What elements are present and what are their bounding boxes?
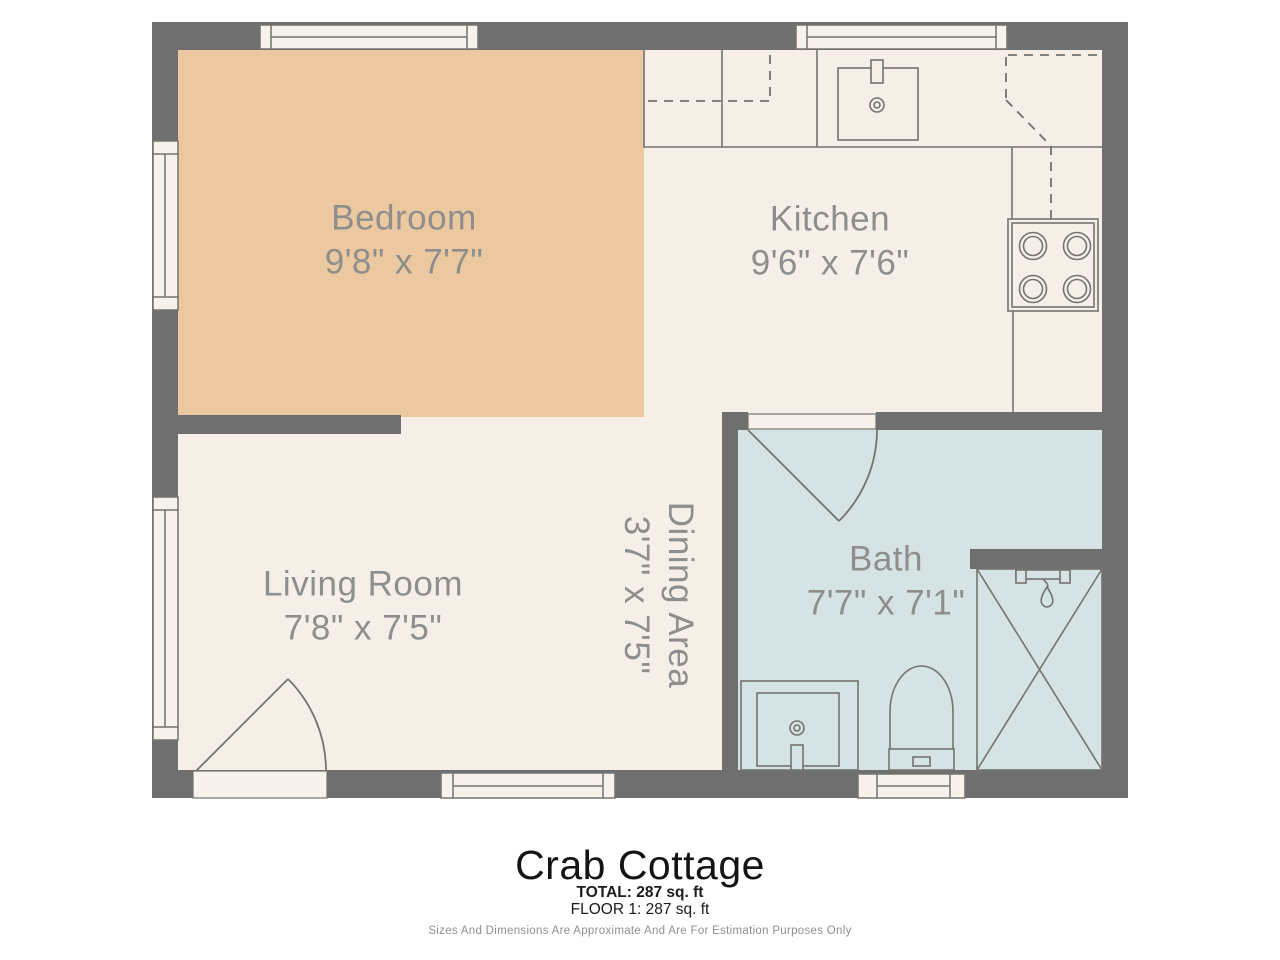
room-name: Bath (736, 537, 1036, 581)
room-label-kitchen: Kitchen 9'6" x 7'6" (650, 197, 1010, 285)
wall-bedroom-living (170, 415, 401, 434)
window-top-bedroom (260, 25, 478, 49)
entry-door-threshold (193, 771, 327, 798)
wall-bath-top-left (722, 412, 748, 430)
bath-door-threshold (748, 414, 876, 429)
room-label-living-room: Living Room 7'8" x 7'5" (173, 562, 553, 650)
room-name: Kitchen (650, 197, 1010, 241)
window-top-kitchen (796, 25, 1007, 49)
room-label-bedroom: Bedroom 9'8" x 7'7" (224, 196, 584, 284)
room-name: Dining Area (658, 445, 702, 745)
window-left-bedroom (153, 141, 178, 310)
wall-bath-top-right (876, 412, 1102, 430)
total-area-text: TOTAL: 287 sq. ft (0, 884, 1280, 902)
room-label-dining-area: Dining Area 3'7" x 7'5" (614, 445, 702, 745)
window-bottom-living (441, 773, 615, 798)
page-title: Crab Cottage (0, 842, 1280, 889)
room-label-bath: Bath 7'7" x 7'1" (736, 537, 1036, 625)
kitchen-sink-faucet (871, 60, 883, 83)
floor-area-text: FLOOR 1: 287 sq. ft (0, 901, 1280, 919)
disclaimer-text: Sizes And Dimensions Are Approximate And… (0, 925, 1280, 937)
room-dimensions: 7'7" x 7'1" (736, 581, 1036, 625)
kitchen-sink (838, 60, 918, 140)
stove (1008, 219, 1098, 311)
room-dimensions: 3'7" x 7'5" (614, 445, 658, 745)
window-bottom-bath (858, 774, 965, 798)
room-dimensions: 7'8" x 7'5" (173, 606, 553, 650)
room-dimensions: 9'8" x 7'7" (224, 240, 584, 284)
room-name: Bedroom (224, 196, 584, 240)
room-dimensions: 9'6" x 7'6" (650, 241, 1010, 285)
floor-plan-page: Bedroom 9'8" x 7'7" Kitchen 9'6" x 7'6" … (0, 0, 1280, 960)
room-name: Living Room (173, 562, 553, 606)
bath-vanity-faucet (791, 745, 803, 770)
